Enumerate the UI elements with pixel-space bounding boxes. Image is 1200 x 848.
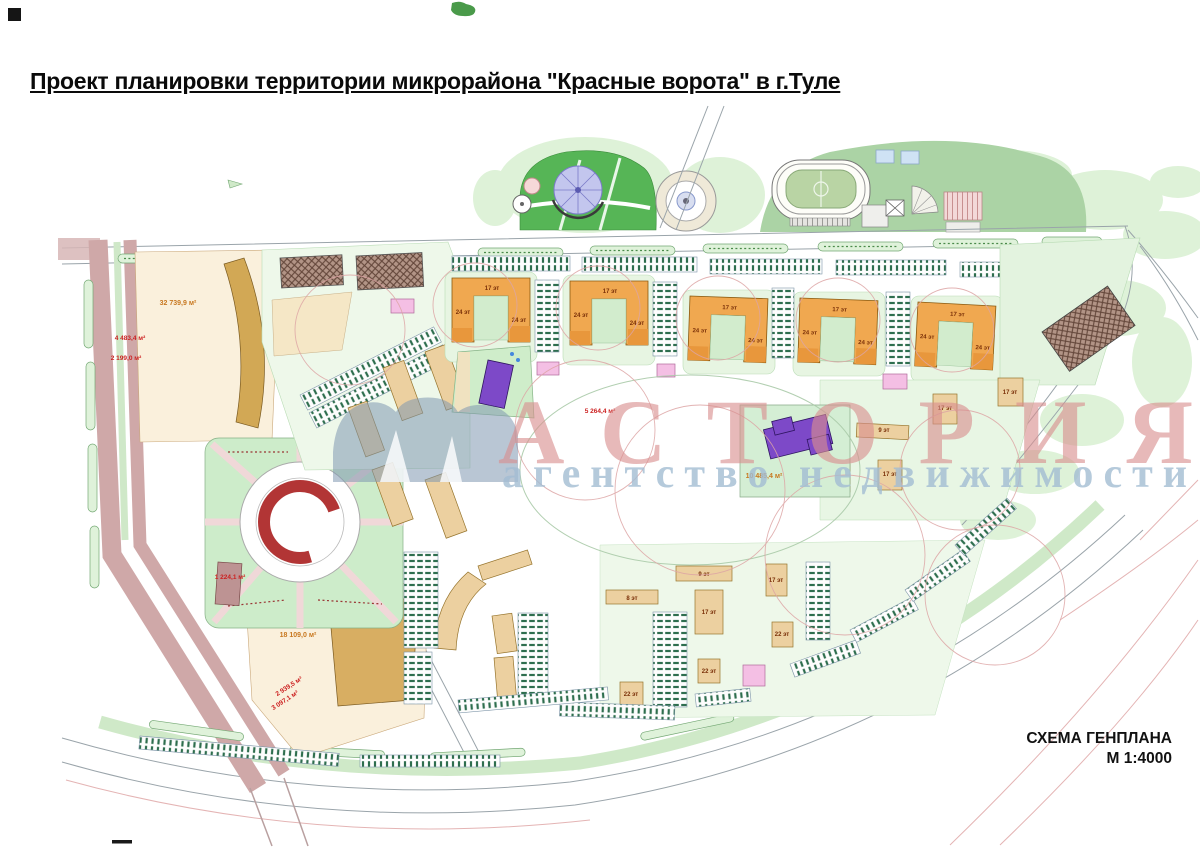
scheme-scale: М 1:4000 (1026, 749, 1172, 769)
scheme-title: СХЕМА ГЕНПЛАНА (1026, 729, 1172, 749)
parking-garage (356, 253, 424, 290)
floor-label: 17 эт (950, 312, 965, 319)
stadium-stands (790, 218, 850, 226)
floor-label: 24 эт (920, 334, 935, 341)
genplan-sheet: Проект планировки территории микрорайона… (0, 0, 1200, 848)
floor-label: 24 эт (858, 340, 873, 347)
floor-label: 24 эт (975, 345, 990, 352)
u-building: 17 эт 24 эт 24 эт (452, 278, 530, 342)
park-carousel (524, 178, 540, 194)
floor-label: 8 эт (626, 596, 637, 602)
floor-label: 22 эт (702, 669, 717, 675)
area-label: 1 224,1 м² (215, 574, 246, 581)
sports-hall (944, 192, 982, 220)
u-building: 17 эт 24 эт 24 эт (915, 302, 996, 370)
floor-label: 17 эт (485, 286, 500, 292)
genplan-map: 17 эт 24 эт 24 эт 17 эт 24 эт 24 эт 17 э… (0, 0, 1200, 848)
floor-label: 17 эт (722, 305, 737, 312)
floor-label: 24 эт (748, 338, 763, 345)
floor-label: 17 эт (603, 289, 618, 295)
area-label: 32 739,9 м² (160, 300, 197, 307)
floor-label: 17 эт (769, 578, 784, 584)
u-building: 17 эт 24 эт 24 эт (688, 296, 768, 363)
area-label: 18 109,0 м² (280, 632, 317, 639)
roundabout (656, 171, 716, 231)
floor-label: 24 эт (574, 313, 589, 319)
floor-label: 24 эт (692, 328, 707, 335)
u-building: 17 эт 24 эт 24 эт (798, 298, 878, 365)
floor-label: 17 эт (832, 307, 847, 314)
arc-building (434, 572, 486, 650)
parking-garage (280, 255, 343, 288)
area-label: 4 483,4 м² (115, 335, 146, 342)
floor-label: 24 эт (802, 330, 817, 337)
titleblock: СХЕМА ГЕНПЛАНА М 1:4000 (1026, 729, 1172, 769)
plaza-building (215, 562, 242, 606)
green-marker (228, 180, 242, 188)
floor-label: 24 эт (456, 310, 471, 316)
floor-label: 17 эт (702, 610, 717, 616)
watermark-subtitle: агентство недвижимости (502, 451, 1187, 497)
floor-label: 22 эт (624, 692, 639, 698)
area-label: 2 199,0 м² (111, 355, 142, 362)
floor-label: 22 эт (775, 632, 790, 638)
floor-label: 9 эт (878, 428, 889, 434)
agency-logo (333, 398, 518, 482)
